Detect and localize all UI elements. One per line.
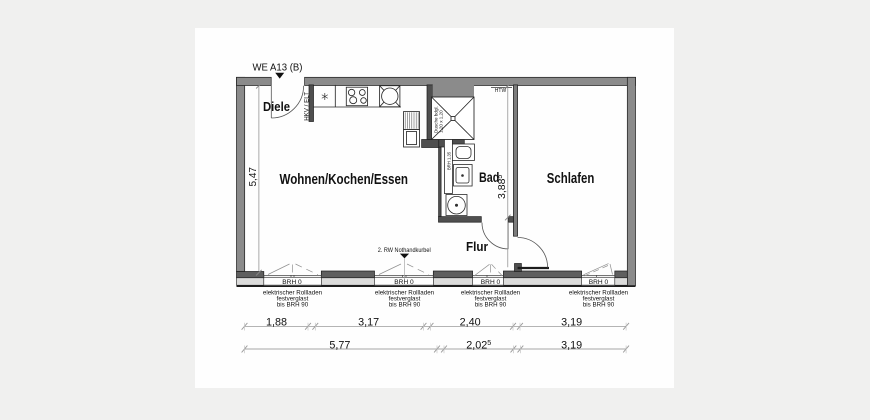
svg-text:2. RW Nothandkurbel: 2. RW Nothandkurbel <box>378 247 431 254</box>
svg-text:bis BRH 90: bis BRH 90 <box>277 302 309 309</box>
svg-text:BRH 0: BRH 0 <box>394 279 414 286</box>
svg-text:3,19: 3,19 <box>561 339 582 351</box>
svg-text:BRH 0: BRH 0 <box>481 279 501 286</box>
svg-text:Wohnen/Kochen/Essen: Wohnen/Kochen/Essen <box>280 171 409 188</box>
svg-text:bis BRH 90: bis BRH 90 <box>583 302 615 309</box>
svg-text:HTW: HTW <box>495 88 507 94</box>
svg-text:3,19: 3,19 <box>561 317 582 329</box>
svg-text:Flur: Flur <box>466 239 488 254</box>
svg-text:HKV / ELT: HKV / ELT <box>304 92 311 121</box>
svg-text:1,20 x 1,20: 1,20 x 1,20 <box>439 110 444 133</box>
svg-text:Diele: Diele <box>263 100 290 114</box>
svg-text:bis BRH 90: bis BRH 90 <box>389 302 421 309</box>
svg-text:5,77: 5,77 <box>329 339 350 351</box>
svg-text:3,17: 3,17 <box>358 317 379 329</box>
svg-text:5,47: 5,47 <box>248 167 259 187</box>
svg-text:BRH 0: BRH 0 <box>282 279 302 286</box>
svg-text:2,40: 2,40 <box>460 317 481 329</box>
svg-text:BRH 0: BRH 0 <box>589 279 609 286</box>
svg-text:Schlafen: Schlafen <box>547 171 595 187</box>
svg-text:3,885: 3,885 <box>496 175 508 199</box>
svg-text:bis BRH 90: bis BRH 90 <box>475 302 507 309</box>
svg-text:WE A13 (B): WE A13 (B) <box>253 63 303 74</box>
svg-text:BRH 1,35: BRH 1,35 <box>447 151 452 170</box>
svg-text:1,88: 1,88 <box>266 317 287 329</box>
